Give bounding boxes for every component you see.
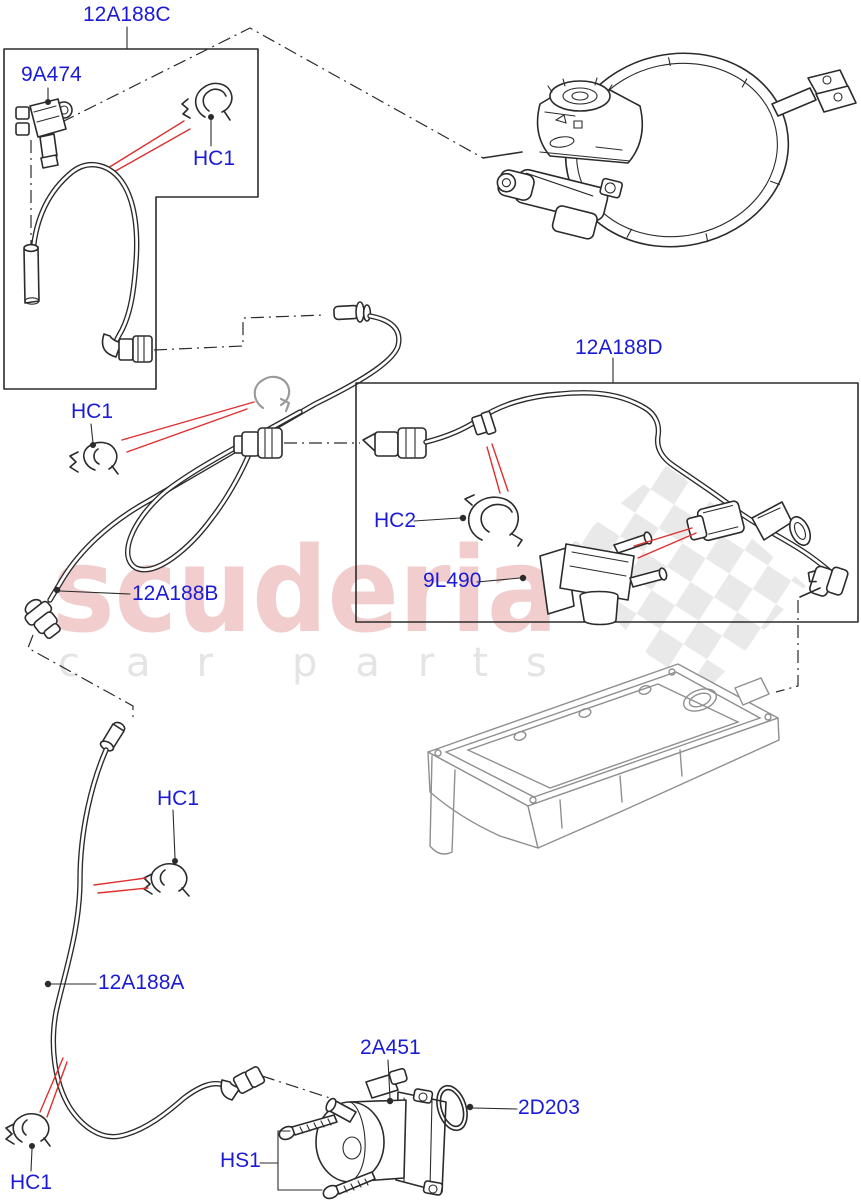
callout-12A188D: 12A188D [575,337,663,359]
connector-left-illustration [363,428,426,458]
callout-HC1-mid: HC1 [71,401,113,423]
callout-HC1-lower: HC1 [157,788,199,810]
engine-cover-illustration [428,664,779,854]
hose-12A188C-illustration [24,165,152,362]
valve-9A474-illustration [16,88,72,168]
watermark-tagline-left: car [58,640,259,686]
clip-HC1-mid-illustration [70,424,118,474]
brake-booster-illustration [489,33,856,267]
elbow-fitting-illustration [221,1066,265,1100]
parts-diagram-page: scuderia car parts [0,0,861,1200]
clip-HC1-lower-illustration [144,810,189,896]
callout-12A188C: 12A188C [83,4,171,26]
hose-connector-illustration [234,428,282,458]
callout-2A451: 2A451 [360,1037,421,1059]
callout-9L490: 9L490 [423,570,481,592]
group-vacuum-pump [260,1060,517,1200]
callout-HS1: HS1 [220,1150,261,1172]
pipe-nipple-illustration [334,302,371,322]
callout-HC2: HC2 [374,510,416,532]
clip-HC1-bottom-illustration [6,1114,50,1171]
diagram-canvas: scuderia car parts [0,0,861,1200]
callout-9A474: 9A474 [21,64,82,86]
clip-HC1-top-illustration [182,83,232,146]
callout-12A188B: 12A188B [132,583,218,605]
callout-2D203: 2D203 [518,1097,580,1119]
nipple-12A188A-illustration [99,721,126,753]
callout-HC1-top: HC1 [193,148,235,170]
callout-12A188A: 12A188A [98,972,184,994]
callout-HC1-bottom: HC1 [10,1172,52,1194]
watermark-tagline-right: parts [292,640,585,686]
